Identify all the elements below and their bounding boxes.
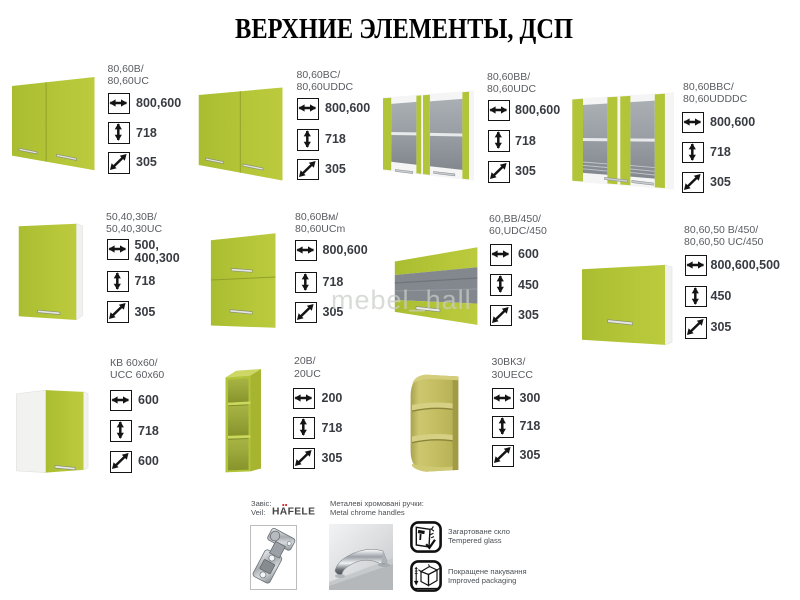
svg-text:HAFELE: HAFELE: [272, 507, 315, 518]
